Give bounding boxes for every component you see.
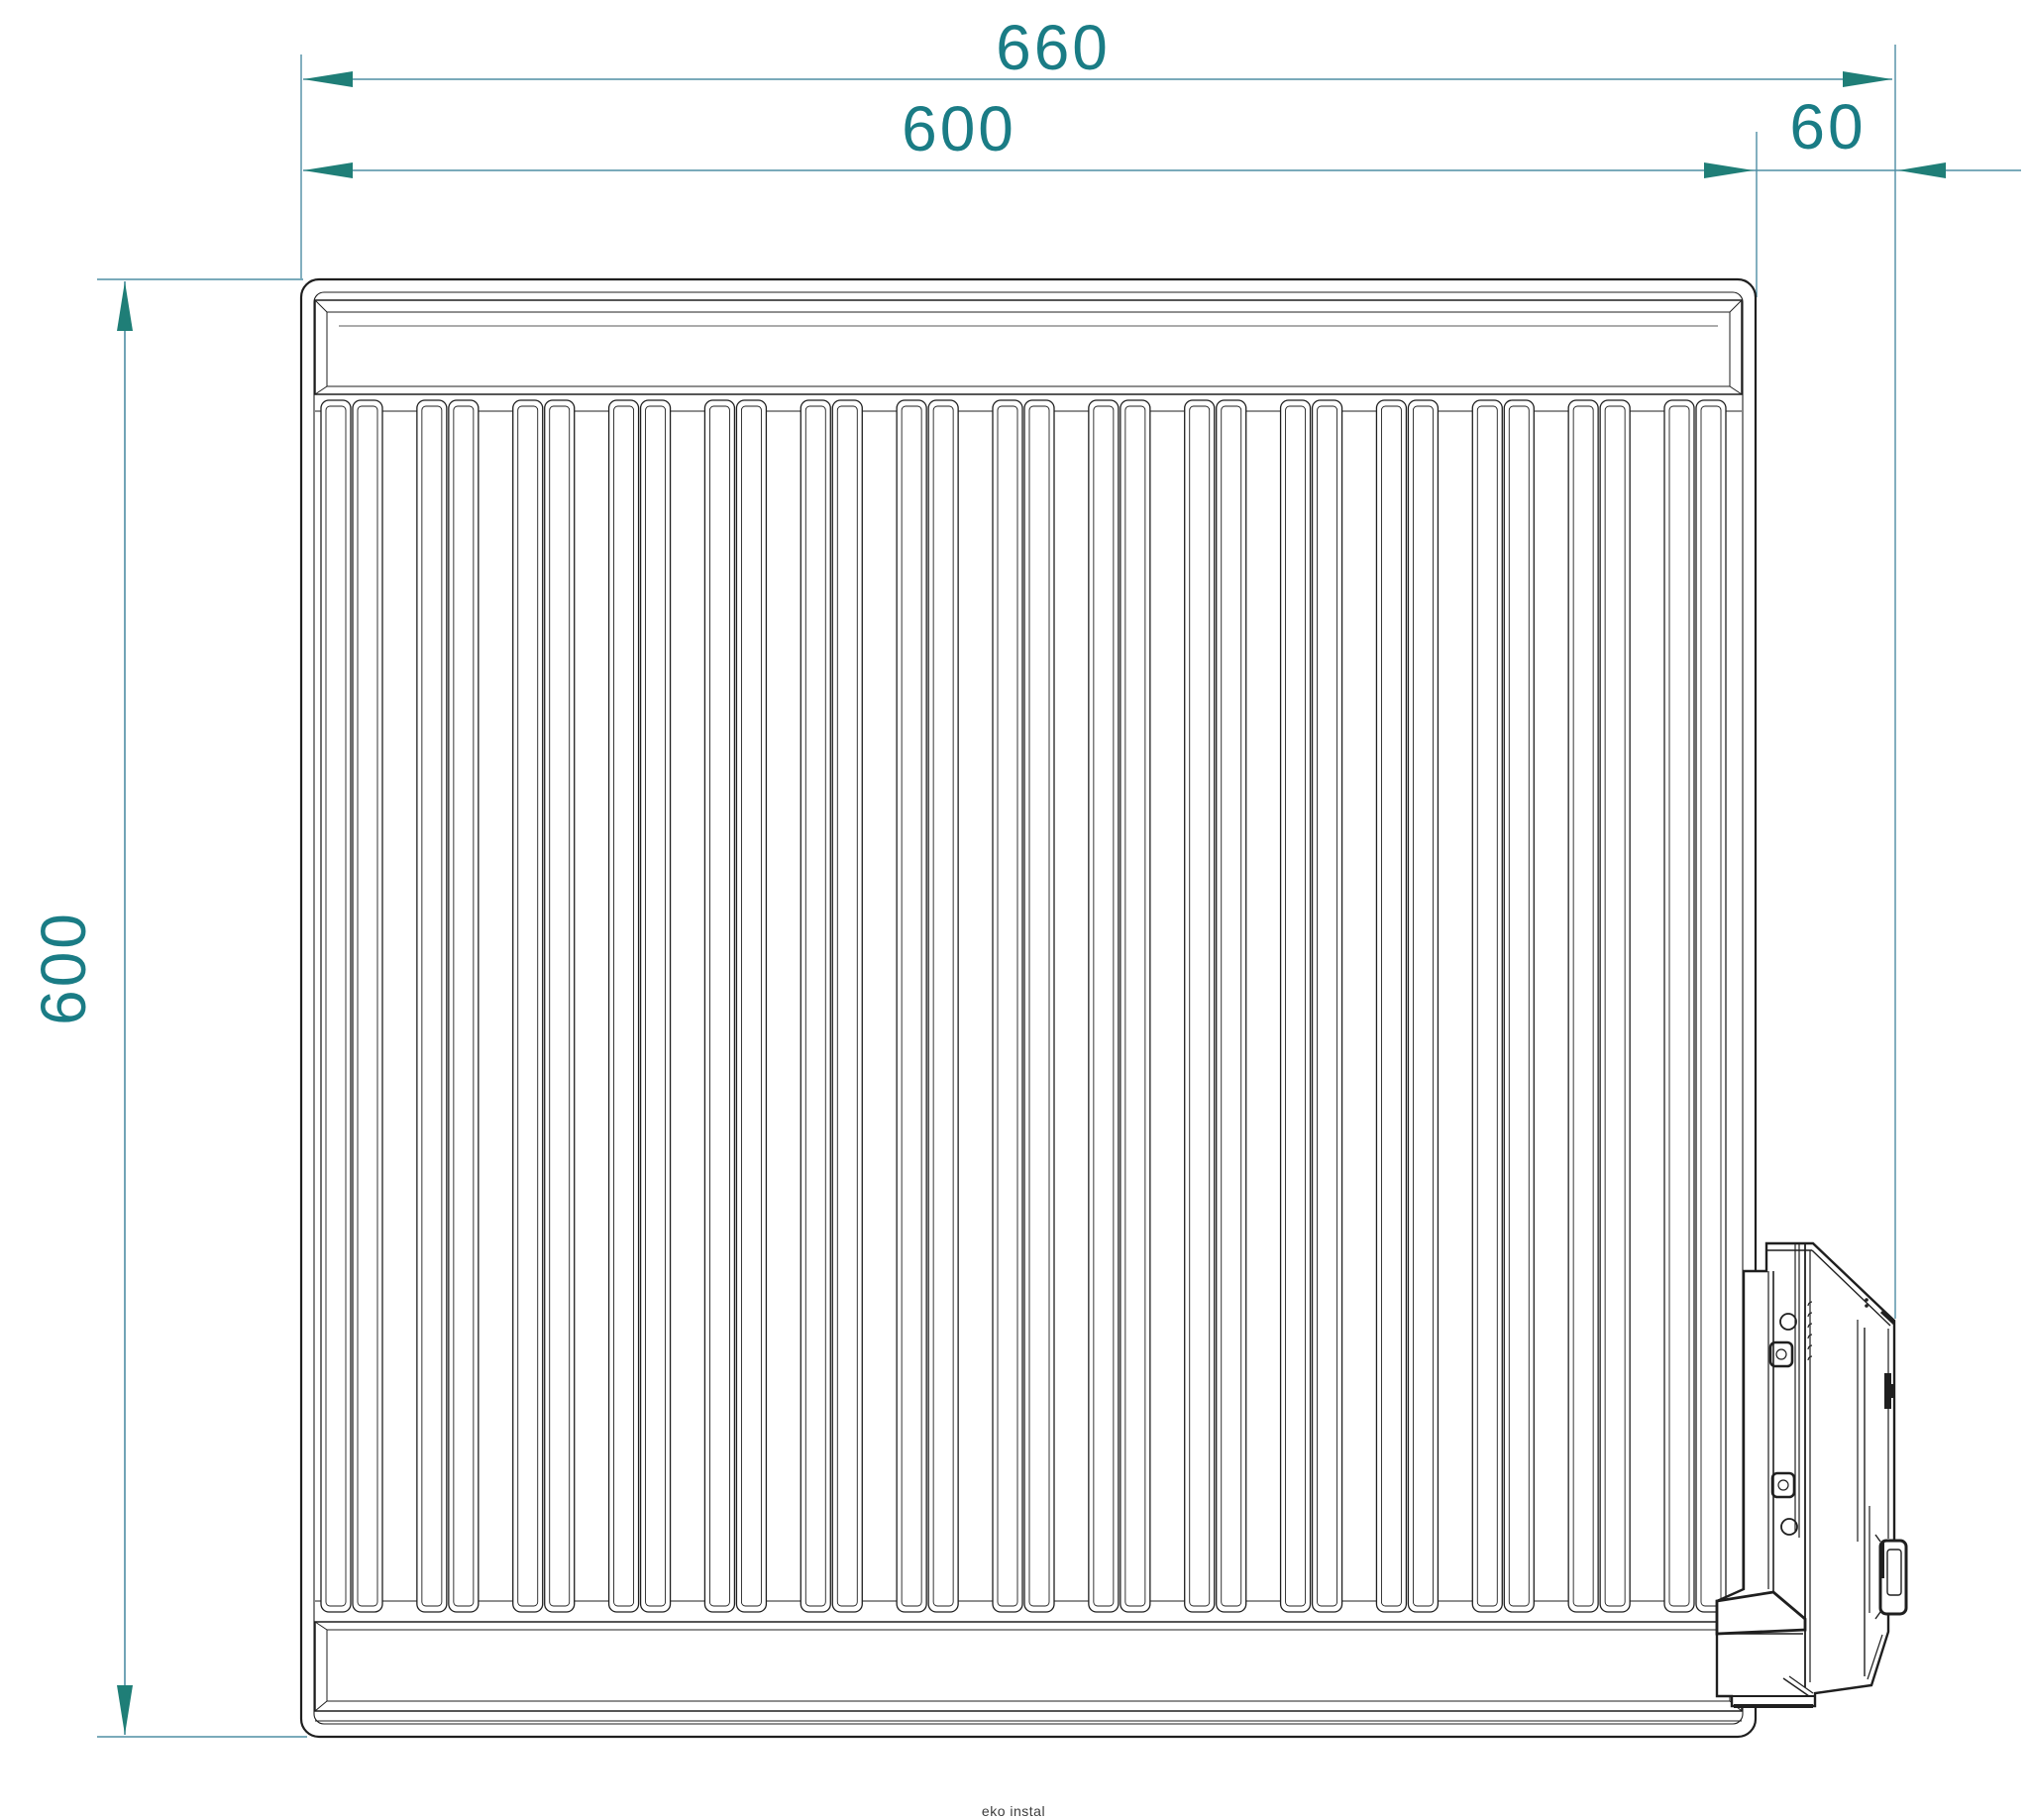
arrow-right-60 — [1898, 162, 1946, 178]
heating-element-side-view — [1717, 1243, 1906, 1706]
arrow-right-660 — [1843, 71, 1892, 87]
radiator-front-view — [301, 279, 1756, 1737]
technical-drawing-svg — [0, 0, 2029, 1820]
drawing-canvas: 660 600 60 600 eko instal — [0, 0, 2029, 1820]
arrow-bottom-height — [117, 1685, 133, 1735]
dim-panel-width-label: 600 — [880, 95, 1038, 162]
arrow-right-600 — [1704, 162, 1754, 178]
arrow-left-660 — [303, 71, 353, 87]
arrow-top-height — [117, 281, 133, 331]
brand-text: eko instal — [934, 1803, 1093, 1819]
dim-total-width-label: 660 — [974, 14, 1132, 81]
dim-panel-height-label: 600 — [29, 889, 98, 1047]
dim-element-depth-label: 60 — [1778, 93, 1877, 161]
arrow-left-600 — [303, 162, 353, 178]
connector — [1875, 1535, 1906, 1619]
